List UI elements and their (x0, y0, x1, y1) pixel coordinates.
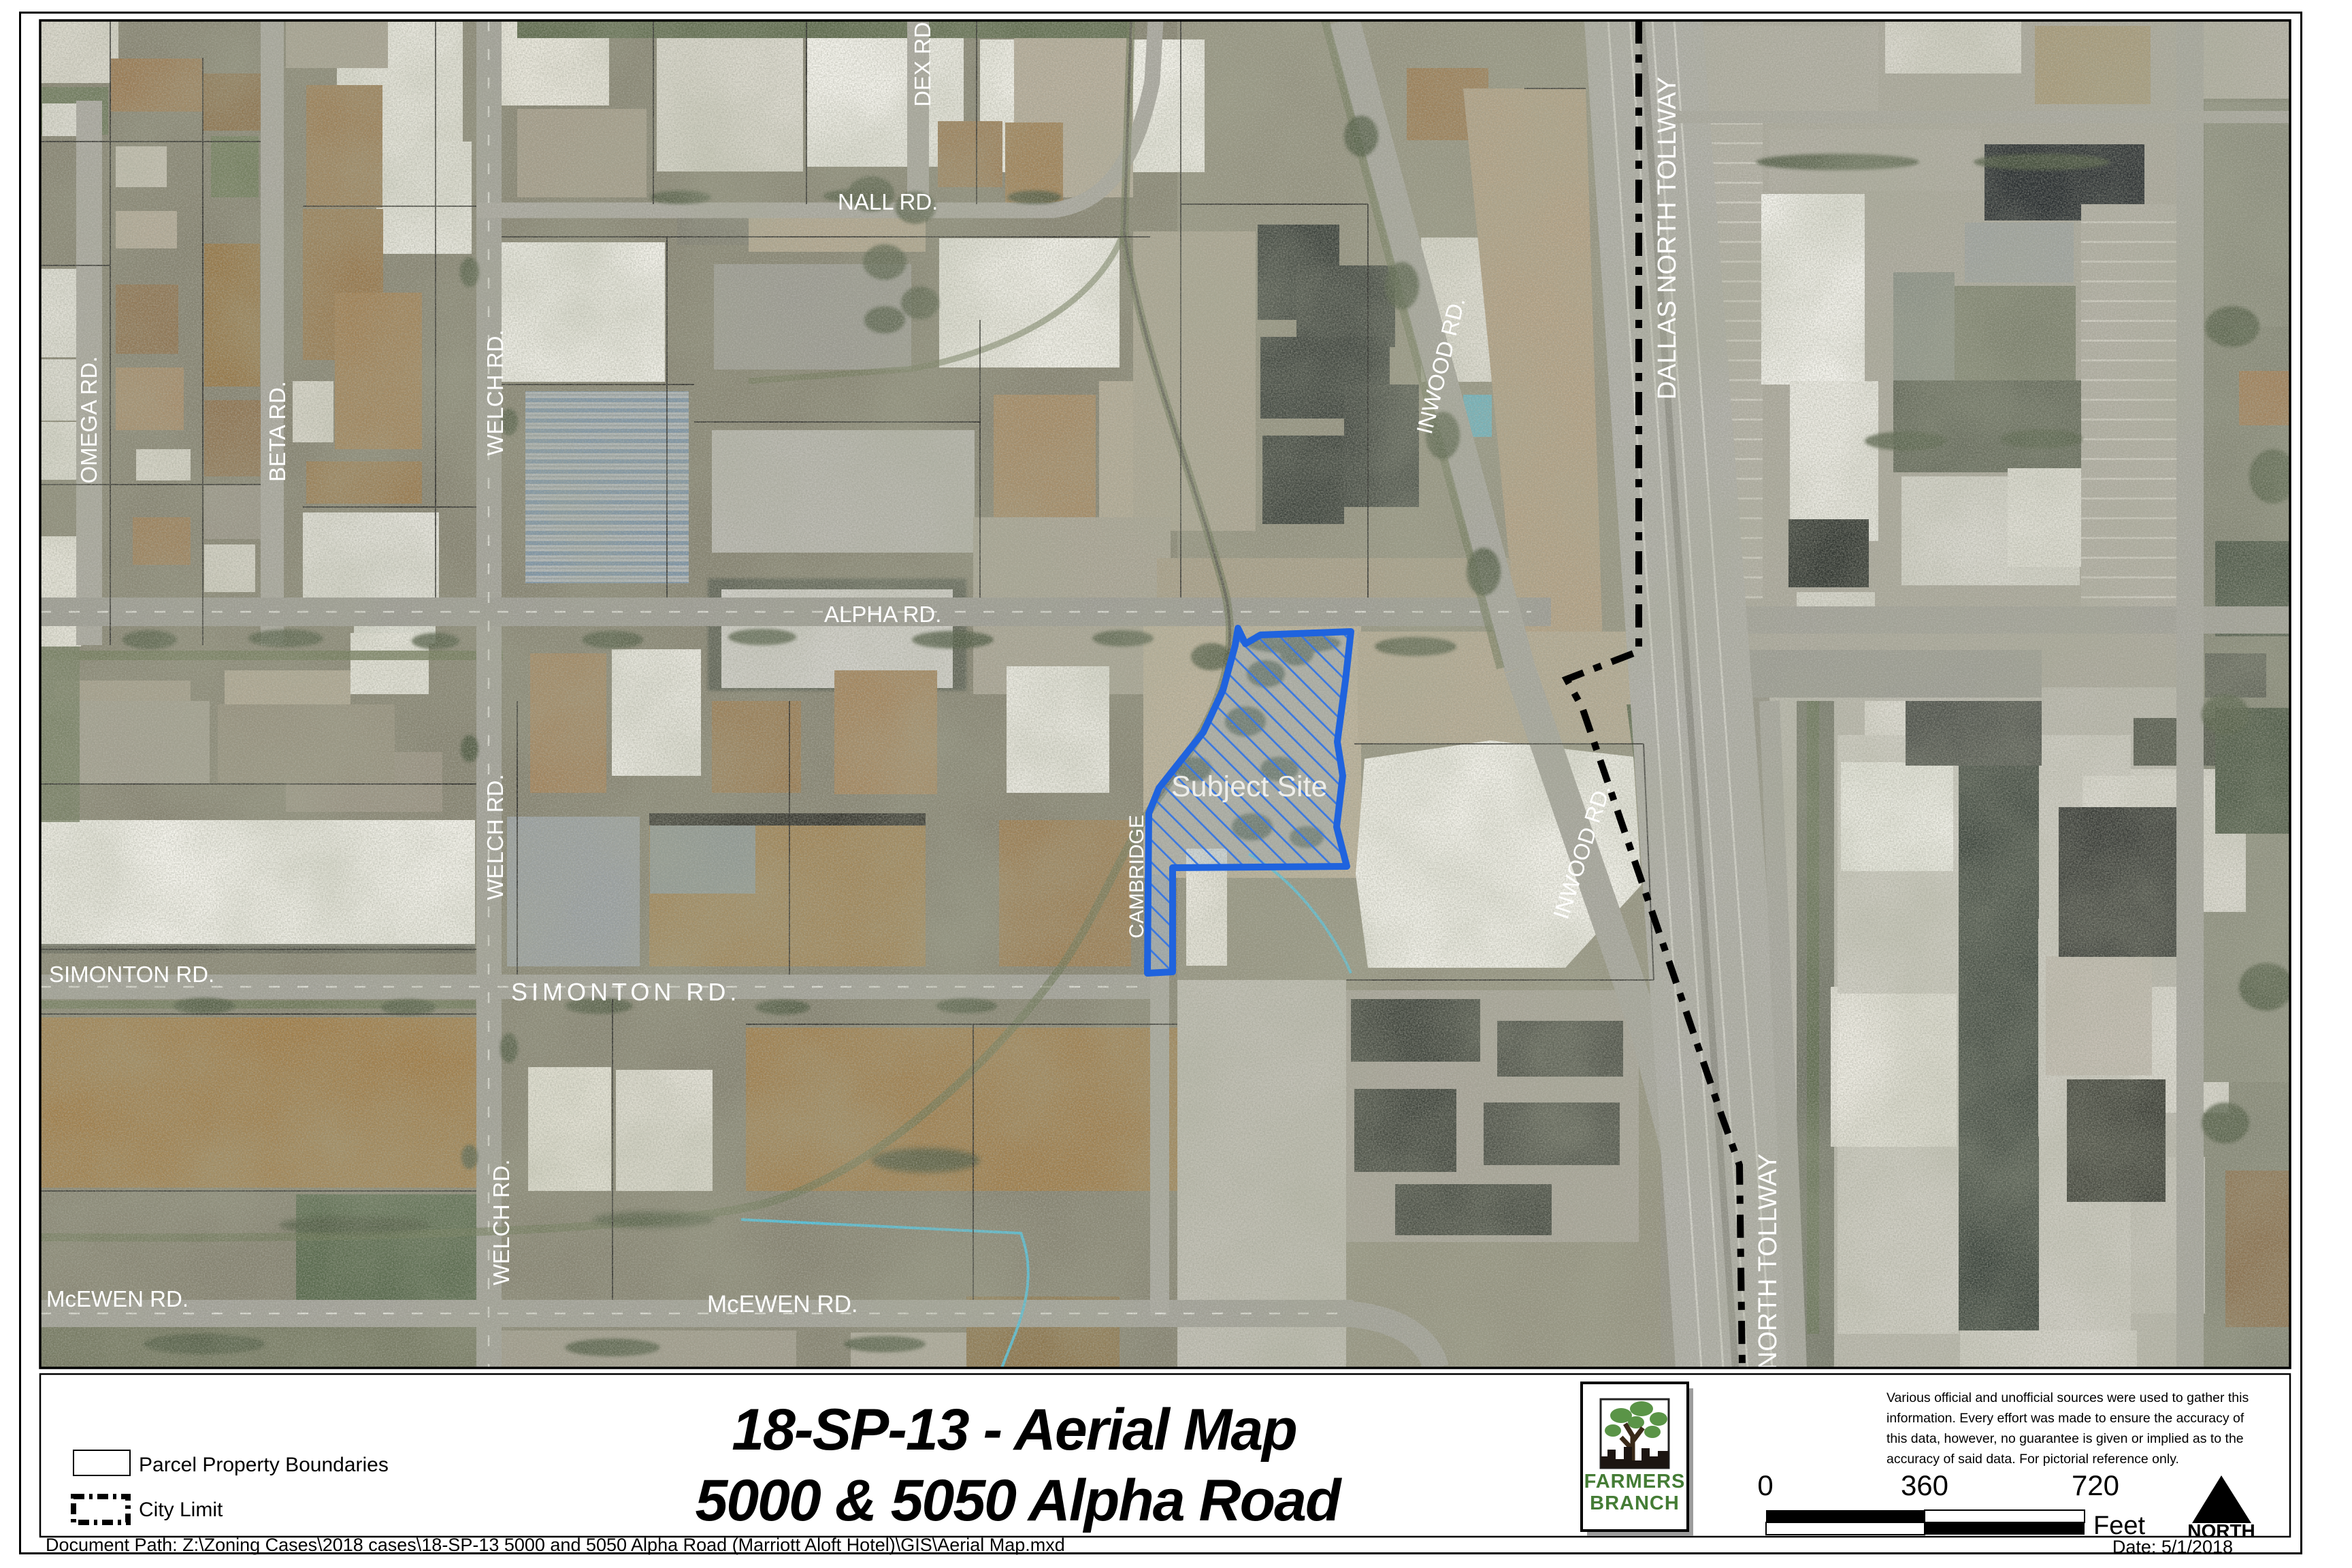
svg-text:Document Path: Z:\Zoning Cases: Document Path: Z:\Zoning Cases\2018 case… (46, 1535, 1065, 1555)
svg-text:SIMONTON RD.: SIMONTON RD. (49, 962, 214, 987)
svg-text:ALPHA RD.: ALPHA RD. (824, 602, 941, 627)
svg-text:Parcel Property Boundaries: Parcel Property Boundaries (139, 1454, 389, 1476)
svg-text:DALLAS NORTH TOLLWAY: DALLAS NORTH TOLLWAY (1653, 77, 1682, 399)
svg-text:DEX RD.: DEX RD. (910, 16, 935, 107)
svg-text:OMEGA RD.: OMEGA RD. (76, 356, 101, 483)
svg-text:720: 720 (2072, 1469, 2119, 1501)
svg-text:CAMBRIDGE: CAMBRIDGE (1126, 815, 1148, 938)
svg-text:McEWEN RD.: McEWEN RD. (46, 1286, 189, 1311)
svg-text:Subject Site: Subject Site (1171, 770, 1327, 803)
svg-text:accuracy of said data. For pi: accuracy of said data. For pictorial ref… (1886, 1452, 2179, 1467)
svg-text:City Limit: City Limit (139, 1499, 223, 1521)
svg-text:Date: 5/1/2018: Date: 5/1/2018 (2112, 1537, 2233, 1557)
svg-text:WELCH RD.: WELCH RD. (489, 1159, 514, 1285)
svg-text:McEWEN RD.: McEWEN RD. (707, 1291, 858, 1318)
svg-text:WELCH RD.: WELCH RD. (483, 329, 508, 455)
svg-text:information. Every effort was: information. Every effort was made to en… (1886, 1411, 2244, 1426)
svg-text:18-SP-13 - Aerial Map: 18-SP-13 - Aerial Map (732, 1397, 1296, 1463)
svg-text:360: 360 (1901, 1469, 1948, 1501)
svg-text:this data, however, no guarant: this data, however, no guarantee is give… (1886, 1431, 2244, 1446)
svg-text:WELCH RD.: WELCH RD. (483, 774, 508, 900)
svg-text:0: 0 (1757, 1469, 1773, 1501)
svg-text:FARMERS: FARMERS (1584, 1471, 1686, 1492)
svg-text:BETA RD.: BETA RD. (265, 381, 290, 482)
svg-text:SIMONTON RD.: SIMONTON RD. (511, 978, 740, 1006)
svg-text:NALL RD.: NALL RD. (838, 189, 938, 214)
svg-text:Feet: Feet (2093, 1512, 2145, 1540)
svg-text:S NORTH TOLLWAY: S NORTH TOLLWAY (1754, 1154, 1782, 1394)
svg-text:BRANCH: BRANCH (1590, 1492, 1680, 1514)
svg-text:5000 & 5050 Alpha Road: 5000 & 5050 Alpha Road (695, 1468, 1341, 1533)
svg-text:Various official and unofficia: Various official and unofficial sources … (1886, 1390, 2249, 1405)
